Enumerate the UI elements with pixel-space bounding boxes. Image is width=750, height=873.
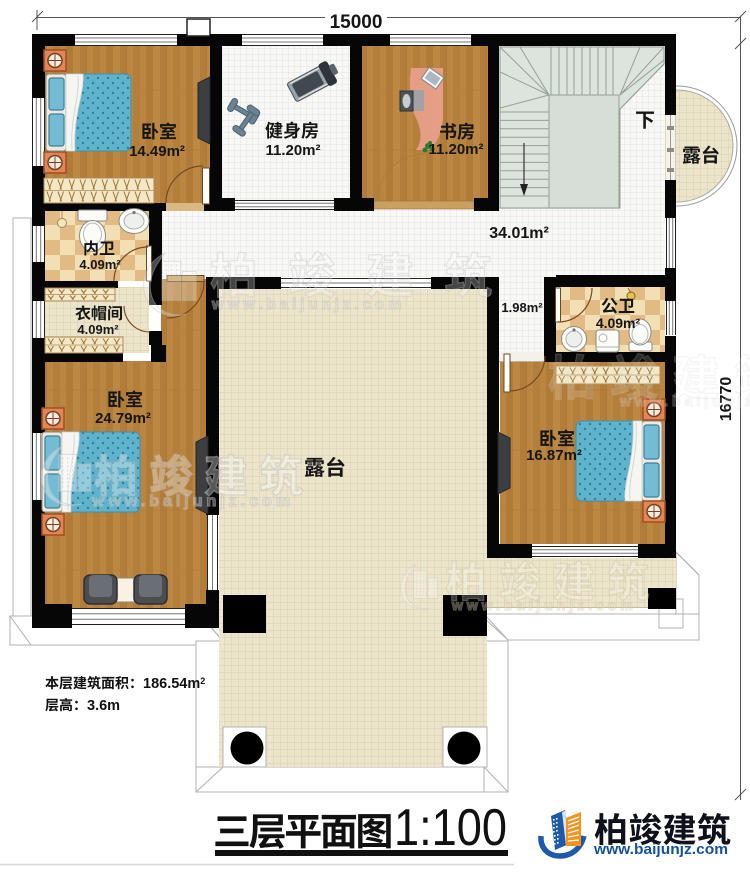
svg-text:34.01m²: 34.01m² <box>489 225 549 242</box>
svg-text:www.baijunjz.com: www.baijunjz.com <box>619 393 750 409</box>
svg-text:14.49m²: 14.49m² <box>129 143 185 160</box>
svg-text:3.6m: 3.6m <box>87 698 120 714</box>
svg-text:186.54m2: 186.54m2 <box>143 676 205 692</box>
svg-text:15000: 15000 <box>330 12 383 33</box>
svg-text:www.baijunjz.com: www.baijunjz.com <box>451 597 637 613</box>
svg-text:1:100: 1:100 <box>394 799 507 857</box>
svg-text:11.20m²: 11.20m² <box>428 141 483 158</box>
svg-text:www.baijunjz.com: www.baijunjz.com <box>91 493 294 510</box>
svg-text:www.baijunjz.com: www.baijunjz.com <box>593 842 728 858</box>
svg-text:4.09m²: 4.09m² <box>79 257 121 272</box>
svg-text:www.baijunjz.com: www.baijunjz.com <box>211 296 405 313</box>
svg-text:1.98m²: 1.98m² <box>501 300 543 315</box>
svg-text:4.09m²: 4.09m² <box>77 322 119 337</box>
svg-text:24.79m²: 24.79m² <box>95 410 151 427</box>
svg-text:16.87m²: 16.87m² <box>526 447 582 464</box>
svg-text:4.09m²: 4.09m² <box>596 315 641 331</box>
svg-text:11.20m²: 11.20m² <box>265 142 320 159</box>
